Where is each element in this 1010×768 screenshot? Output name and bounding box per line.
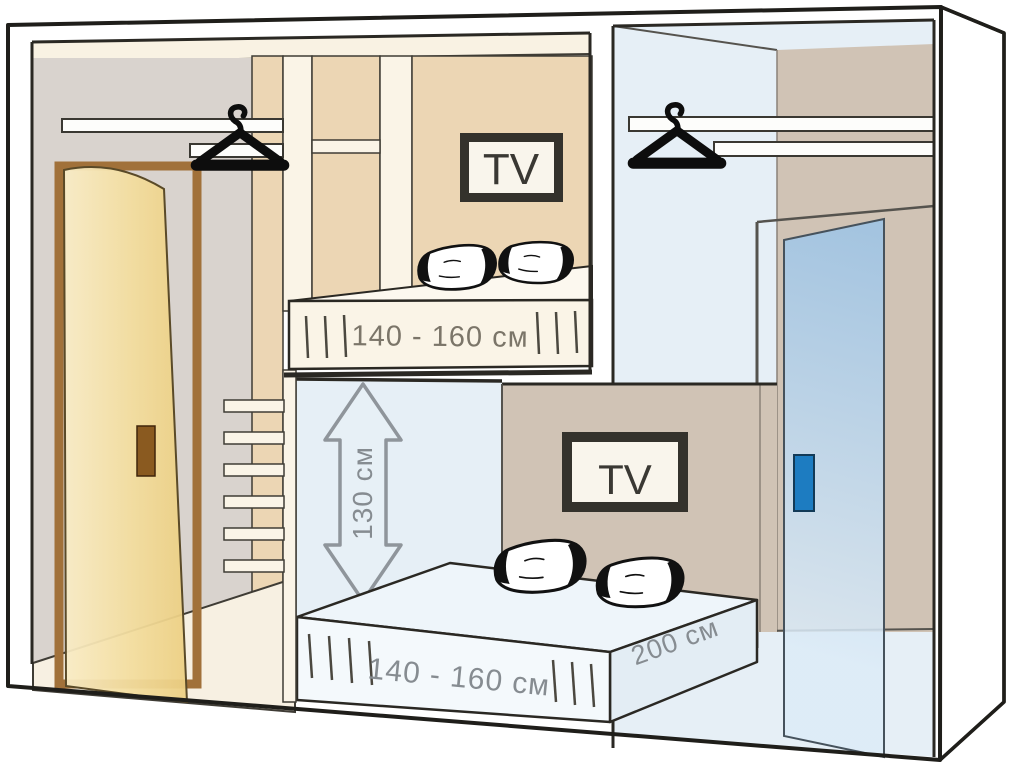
pillow bbox=[596, 557, 684, 608]
closet-post-tan bbox=[252, 56, 283, 601]
room-right-wall bbox=[940, 7, 1004, 760]
ladder-rung bbox=[224, 400, 284, 412]
tv-upper-label: TV bbox=[483, 145, 540, 194]
loft-platform-edge bbox=[284, 372, 592, 375]
diagram-svg: 130 см TV 140 - 160 см 200 см bbox=[0, 0, 1010, 768]
clothes-rail-left-upper bbox=[62, 119, 283, 132]
closet-shelf bbox=[312, 140, 380, 153]
wardrobe-door-handle bbox=[794, 455, 814, 511]
ladder-rung bbox=[224, 432, 284, 444]
pillow bbox=[499, 241, 573, 285]
ladder-rung bbox=[224, 496, 284, 508]
lower-bed-room: 130 см TV 140 - 160 см 200 см bbox=[295, 379, 777, 722]
ladder-rung bbox=[224, 528, 284, 540]
tv-upper: TV bbox=[460, 133, 563, 202]
tv-lower-label: TV bbox=[598, 456, 652, 503]
front-post bbox=[283, 370, 296, 702]
clearance-height-label: 130 см bbox=[347, 446, 378, 540]
tv-lower: TV bbox=[562, 432, 688, 512]
loft-underside-line bbox=[295, 379, 502, 381]
entry-door-handle bbox=[137, 426, 155, 476]
wardrobe-door bbox=[784, 219, 884, 757]
closet-panel bbox=[312, 56, 380, 311]
ladder-rung bbox=[224, 464, 284, 476]
clothes-rail-lower bbox=[714, 142, 934, 156]
upper-bed-width-label: 140 - 160 см bbox=[351, 320, 528, 354]
closet-post-cream bbox=[283, 56, 312, 311]
room-layout-diagram: 130 см TV 140 - 160 см 200 см bbox=[0, 0, 1010, 768]
ladder-rung bbox=[224, 560, 284, 572]
closet-post-cream-2 bbox=[380, 56, 412, 311]
